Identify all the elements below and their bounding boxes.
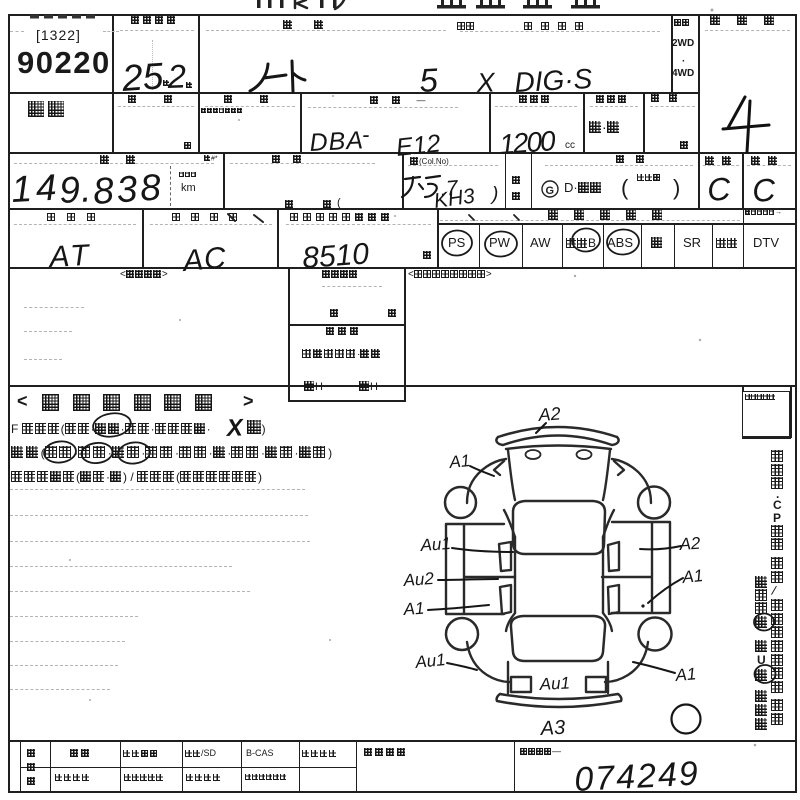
svg-text:G: G [546, 185, 555, 197]
svg-text:838: 838 [92, 166, 165, 212]
svg-text:X: X [475, 67, 496, 98]
svg-text:DBA: DBA [309, 126, 365, 157]
svg-text:074249: 074249 [573, 754, 700, 799]
svg-text:A1: A1 [680, 566, 704, 587]
svg-text:A3: A3 [539, 717, 566, 740]
svg-text:Au1: Au1 [538, 673, 570, 694]
svg-text:Au1: Au1 [419, 534, 451, 555]
svg-text:): ) [490, 184, 498, 205]
svg-text:A2: A2 [678, 534, 702, 555]
svg-text:KH3: KH3 [432, 184, 476, 213]
svg-text:8510: 8510 [301, 237, 370, 275]
svg-text:A2: A2 [537, 404, 561, 426]
svg-text:X: X [224, 414, 245, 442]
svg-text:Au1: Au1 [413, 650, 446, 672]
svg-text:DIG·S: DIG·S [514, 63, 594, 98]
svg-text:5: 5 [418, 61, 439, 99]
svg-text:1200: 1200 [498, 125, 557, 160]
svg-text:Au2: Au2 [402, 569, 435, 590]
svg-text:2: 2 [166, 57, 187, 95]
svg-text:E12: E12 [395, 129, 442, 162]
svg-text:9.: 9. [58, 168, 93, 211]
svg-text:A1: A1 [402, 599, 425, 619]
svg-text:25: 25 [120, 55, 165, 99]
svg-text:A1: A1 [447, 451, 471, 472]
svg-text:AT: AT [47, 239, 93, 274]
svg-text:A1: A1 [674, 664, 697, 685]
svg-text:C: C [751, 171, 777, 209]
svg-text:C: C [706, 170, 732, 208]
svg-text:-: - [362, 122, 369, 147]
svg-text:14: 14 [10, 166, 61, 210]
svg-text:AC: AC [180, 241, 228, 278]
